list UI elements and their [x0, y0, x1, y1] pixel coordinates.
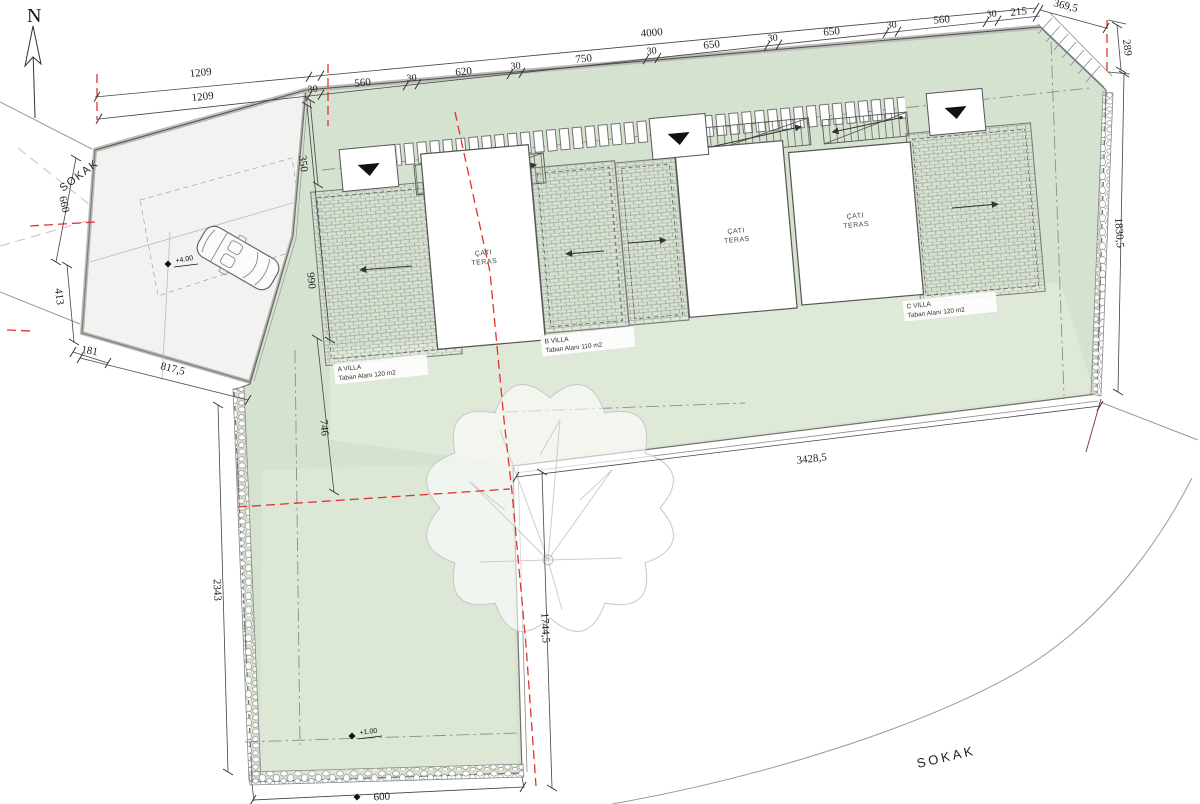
dim-seg-9: 650 [823, 25, 841, 39]
roof-hatch-2-fill [531, 161, 629, 334]
villa-a-roof: ÇATI TERAS [421, 145, 546, 350]
north-label: N [27, 5, 41, 27]
street-label-bottom: SOKAK [915, 743, 977, 771]
villa-b-roof: ÇATI TERAS [675, 141, 797, 318]
roof-hatch-2 [531, 161, 629, 334]
dim-seg-7: 650 [703, 38, 721, 52]
dim-990: 990 [304, 272, 318, 290]
dim-369-5: 369,5 [1052, 0, 1079, 15]
road-curve-bottom-right [612, 478, 1192, 804]
entry-box-2 [649, 113, 709, 159]
dim-seg-8: 30 [767, 32, 778, 44]
dim-seg-2: 30 [406, 72, 417, 84]
dim-seg-1: 560 [354, 76, 372, 90]
dim-2343: 2343 [211, 579, 224, 602]
dim-181: 181 [80, 344, 98, 359]
dim-4000: 4000 [640, 26, 664, 40]
setback-sokak-left [30, 222, 95, 226]
dim-289: 289 [1120, 39, 1134, 57]
roof-hatch-4-fill [906, 123, 1045, 302]
dim-seg-6: 30 [646, 45, 657, 57]
tree [427, 385, 674, 632]
dim-seg-11: 560 [933, 13, 951, 27]
road-edge-right [1100, 402, 1198, 440]
dim-660: 660 [56, 195, 71, 214]
dim-seg-13: 215 [1010, 5, 1028, 19]
roof-hatch-4 [906, 123, 1045, 302]
dim-350: 350 [296, 155, 310, 173]
dim-1209-row1: 1209 [189, 66, 213, 80]
dim-line-413 [67, 265, 74, 342]
villa-a-roof-slab [421, 145, 546, 350]
dim-line-289 [1117, 25, 1121, 70]
dim-746: 746 [317, 419, 331, 437]
dim-seg-3: 620 [455, 65, 473, 79]
dim-413: 413 [52, 288, 66, 306]
dim-1830-5: 1830,5 [1112, 217, 1126, 249]
dim-seg-0: 30 [307, 83, 318, 95]
road-edge-left-lower [0, 292, 80, 324]
entry-box-1 [339, 144, 399, 191]
north-arrow: N [25, 5, 41, 118]
villa-c-roof: ÇATI TERAS [789, 142, 924, 305]
dim-3428-5: 3428,5 [796, 451, 828, 466]
road-edge-topleft [0, 102, 92, 149]
tree-canopy [427, 385, 674, 632]
dim-1209-row2: 1209 [191, 90, 215, 104]
dim-seg-10: 30 [886, 19, 897, 31]
setback-left-small [7, 330, 32, 331]
dim-600: 600 [373, 791, 391, 804]
dim-seg-4: 30 [510, 60, 521, 72]
site-plan-canvas: ÇATI TERAS ÇATI TERAS ÇATI TERAS [0, 0, 1200, 804]
north-arrow-shaft [33, 50, 35, 118]
dim-1744-5: 1744,5 [538, 612, 552, 643]
dim-seg-12: 30 [986, 8, 997, 20]
dim-seg-5: 750 [575, 52, 593, 66]
entry-box-3 [926, 88, 986, 135]
